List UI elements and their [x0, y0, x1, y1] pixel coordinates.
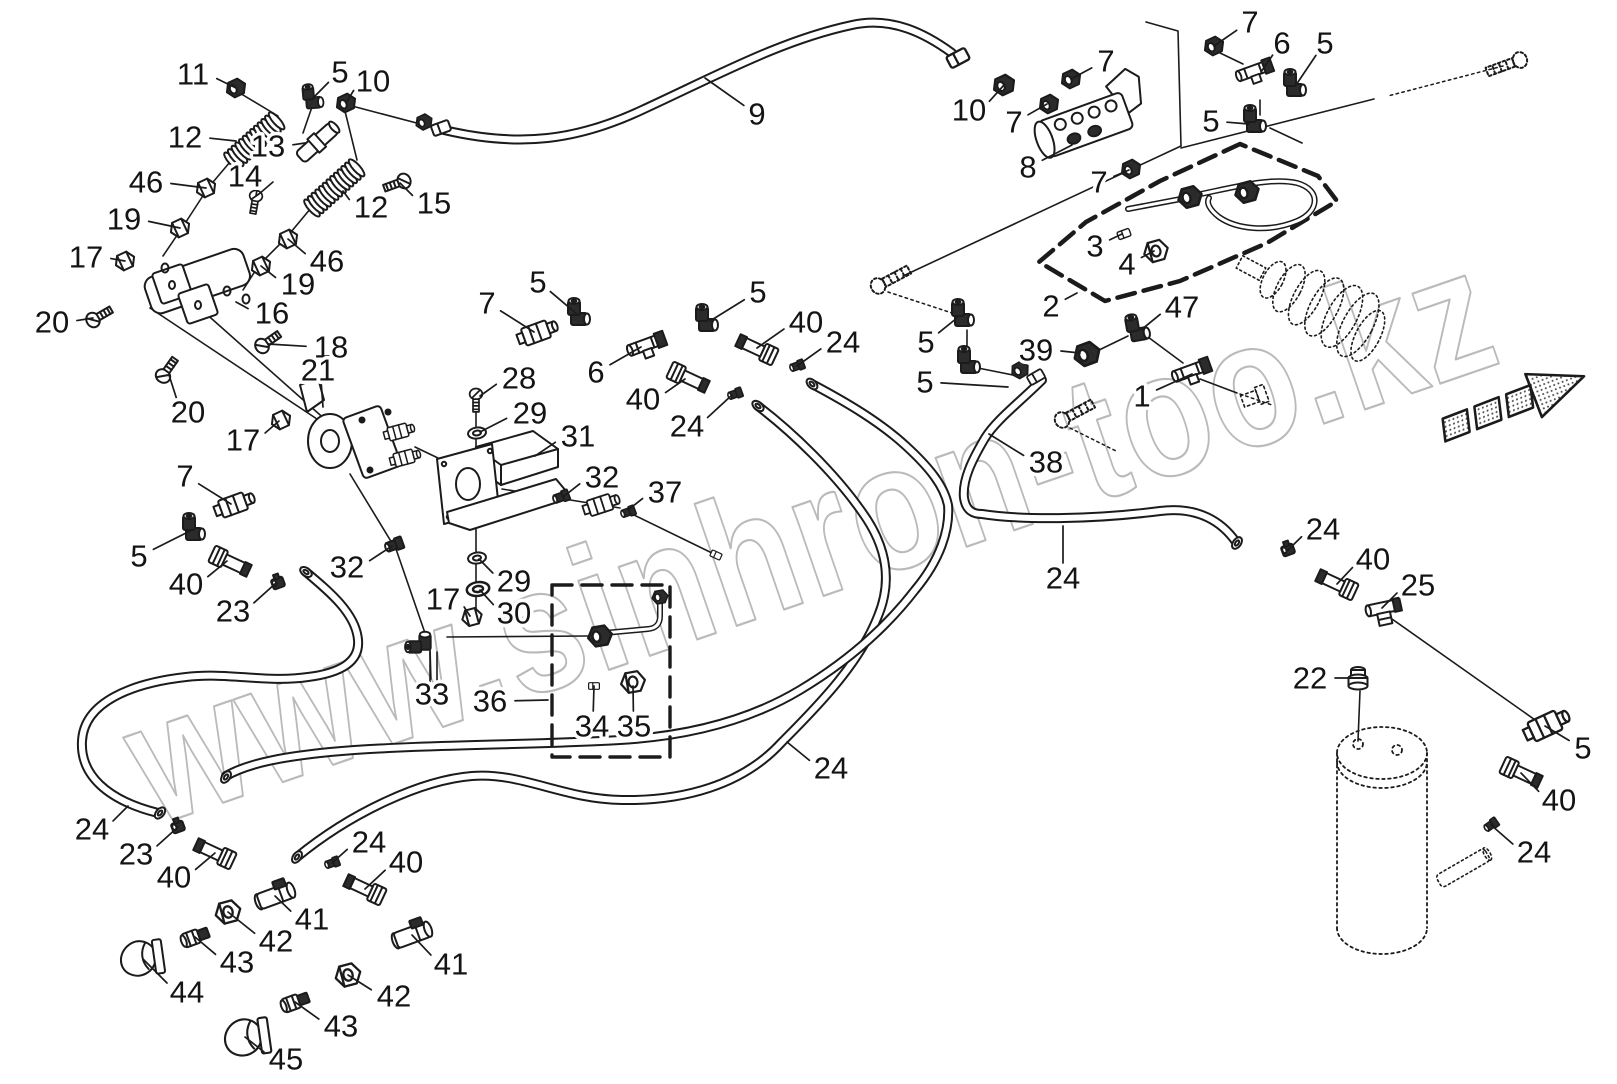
part-number-label: 40: [169, 567, 203, 602]
part-number-label: 7: [1005, 105, 1022, 140]
part-number-label: 15: [417, 186, 451, 221]
part-number-label: 39: [1019, 333, 1053, 368]
screw-20: [153, 354, 181, 385]
part-number-label: 30: [497, 596, 531, 631]
part-number-label: 8: [1019, 150, 1036, 185]
fitting-7: [212, 489, 257, 520]
leader-line: [1296, 55, 1316, 85]
pin-13: [294, 119, 342, 165]
part-number-label: 5: [130, 539, 147, 574]
part-number-label: 4: [1118, 247, 1135, 282]
part-number-label: 10: [952, 93, 986, 128]
fitting-32: [383, 536, 404, 553]
leader-line: [210, 138, 236, 141]
valve-41: [388, 915, 434, 950]
part-number-label: 7: [1097, 44, 1114, 79]
part-number-label: 11: [177, 57, 209, 92]
part-number-label: 17: [426, 582, 460, 617]
part-number-label: 5: [749, 275, 766, 310]
part-number-label: 40: [1542, 783, 1576, 818]
leader-line: [710, 300, 744, 321]
part-number-label: 24: [670, 409, 704, 444]
part-number-label: 29: [513, 396, 547, 431]
part-number-label: 24: [1517, 835, 1551, 870]
part-number-label: 35: [617, 709, 651, 744]
part-number-label: 40: [389, 845, 423, 880]
part-number-label: 23: [216, 594, 250, 629]
hose-end: [750, 399, 765, 413]
ghost-screw: [868, 263, 913, 297]
part-number-label: 21: [301, 353, 335, 388]
leader-line: [705, 78, 744, 105]
exploded-parts-diagram: www.sinhron-too.kz: [0, 0, 1617, 1084]
part-number-label: 42: [259, 924, 293, 959]
leader-line: [1491, 825, 1513, 844]
part-number-label: 10: [356, 64, 390, 99]
part-number-label: 36: [473, 684, 507, 719]
fitting-24: [727, 387, 744, 401]
sleeve-3: [1117, 228, 1131, 240]
part-number-label: 40: [626, 382, 660, 417]
part-number-label: 46: [129, 165, 163, 200]
screw-28: [470, 388, 483, 411]
washer-29: [467, 426, 486, 439]
elbow-5: [1284, 69, 1306, 96]
part-number-label: 17: [69, 240, 103, 275]
leader-line: [787, 742, 809, 760]
leader-line: [113, 806, 128, 821]
elbow-5: [958, 346, 980, 373]
part-number-label: 24: [352, 825, 386, 860]
hose-9: [444, 23, 952, 140]
tank-dotted: [1337, 727, 1427, 954]
manifold-8: [1024, 65, 1155, 160]
clamp-24: [1279, 539, 1295, 556]
cap-44: [119, 938, 166, 978]
leader-line: [797, 349, 821, 366]
elbow-5: [302, 83, 324, 109]
nut-4: [1142, 238, 1171, 263]
part-number-label: 41: [295, 902, 329, 937]
leader-line: [708, 395, 732, 417]
part-number-label: 5: [331, 55, 348, 90]
part-number-label: 20: [171, 395, 205, 430]
part-number-label: 12: [354, 190, 388, 225]
plate-16: [142, 246, 253, 324]
part-number-label: 1: [1133, 379, 1150, 414]
part-number-label: 45: [269, 1042, 303, 1077]
part-number-label: 7: [478, 286, 495, 321]
bolt-40: [666, 361, 711, 395]
leader-line: [480, 418, 507, 432]
elbow-5: [183, 513, 205, 540]
screw-18: [252, 328, 283, 356]
leader-line: [268, 344, 306, 346]
part-number-label: 5: [916, 365, 933, 400]
part-number-label: 19: [107, 202, 141, 237]
part-number-label: 22: [1293, 661, 1327, 696]
hose-end: [290, 849, 304, 864]
part-number-label: 31: [561, 419, 595, 454]
part-number-label: 24: [75, 812, 109, 847]
part-number-label: 28: [502, 361, 536, 396]
nut-7: [1037, 93, 1062, 116]
part-number-label: 32: [330, 550, 364, 585]
leader-line: [593, 686, 594, 711]
part-number-label: 40: [157, 860, 191, 895]
leader-line: [313, 82, 328, 98]
nut-7: [1119, 158, 1144, 181]
part-number-label: 20: [35, 305, 69, 340]
ghost-tube: [1435, 846, 1493, 888]
part-number-label: 34: [575, 709, 609, 744]
part-number-label: 29: [497, 564, 531, 599]
bracket-31: [437, 431, 566, 530]
part-number-label: 24: [814, 751, 848, 786]
part-number-label: 5: [1316, 26, 1333, 61]
part-number-label: 12: [168, 120, 202, 155]
leader-line: [1065, 293, 1077, 299]
part-number-label: 6: [1273, 26, 1290, 61]
valve-41: [251, 876, 297, 911]
part-number-label: 38: [1029, 445, 1063, 480]
part-number-label: 32: [585, 460, 619, 495]
leader-line: [199, 484, 231, 504]
leader-line: [480, 384, 496, 396]
part-number-label: 5: [529, 265, 546, 300]
part-number-label: 9: [748, 97, 765, 132]
part-number-label: 5: [917, 325, 934, 360]
part-number-label: 24: [1046, 561, 1080, 596]
ghost-screw: [1484, 50, 1529, 79]
leader-line: [430, 650, 431, 679]
valve-21: [300, 378, 422, 479]
part-number-label: 42: [377, 979, 411, 1014]
part-number-label: 47: [1165, 290, 1199, 325]
leader-line: [501, 311, 534, 332]
leader-line: [610, 347, 641, 365]
formed-pipe-loop: [1128, 180, 1315, 229]
part-number-label: 7: [176, 459, 193, 494]
tee-6: [625, 331, 669, 364]
part-number-label: 14: [228, 159, 262, 194]
part-number-label: 7: [1241, 5, 1258, 40]
part-number-label: 24: [1306, 512, 1340, 547]
part-number-label: 33: [415, 677, 449, 712]
part-number-label: 44: [170, 975, 204, 1010]
part-number-label: 17: [226, 423, 260, 458]
part-number-label: 5: [1574, 731, 1591, 766]
leader-line: [295, 1002, 319, 1019]
part-number-label: 43: [324, 1009, 358, 1044]
leader-line: [254, 583, 276, 603]
part-number-label: 7: [1090, 165, 1107, 200]
elbow-5: [952, 299, 974, 326]
part-number-label: 40: [789, 305, 823, 340]
part-number-label: 16: [255, 296, 289, 331]
parts-diagram-page: www.sinhron-too.kz: [0, 0, 1617, 1084]
leader-line: [321, 385, 323, 407]
part-number-label: 2: [1042, 289, 1059, 324]
part-number-label: 23: [119, 837, 153, 872]
bolt-40: [208, 545, 253, 579]
part-number-label: 41: [434, 947, 468, 982]
part-number-label: 24: [826, 325, 860, 360]
screw-20: [84, 303, 115, 330]
part-number-label: 25: [1401, 568, 1435, 603]
hose-end: [805, 377, 820, 392]
part-number-label: 40: [1356, 542, 1390, 577]
part-number-label: 43: [220, 945, 254, 980]
elbow-5: [1244, 105, 1266, 132]
nut-17: [269, 409, 294, 432]
leader-line: [515, 700, 548, 701]
fitting-7: [515, 317, 560, 348]
elbow-5: [568, 298, 590, 325]
part-number-label: 5: [1202, 104, 1219, 139]
part-number-label: 6: [587, 355, 604, 390]
part-number-label: 3: [1086, 229, 1103, 264]
leader-line: [370, 546, 392, 561]
hose-end: [298, 565, 313, 579]
part-number-label: 37: [648, 475, 682, 510]
